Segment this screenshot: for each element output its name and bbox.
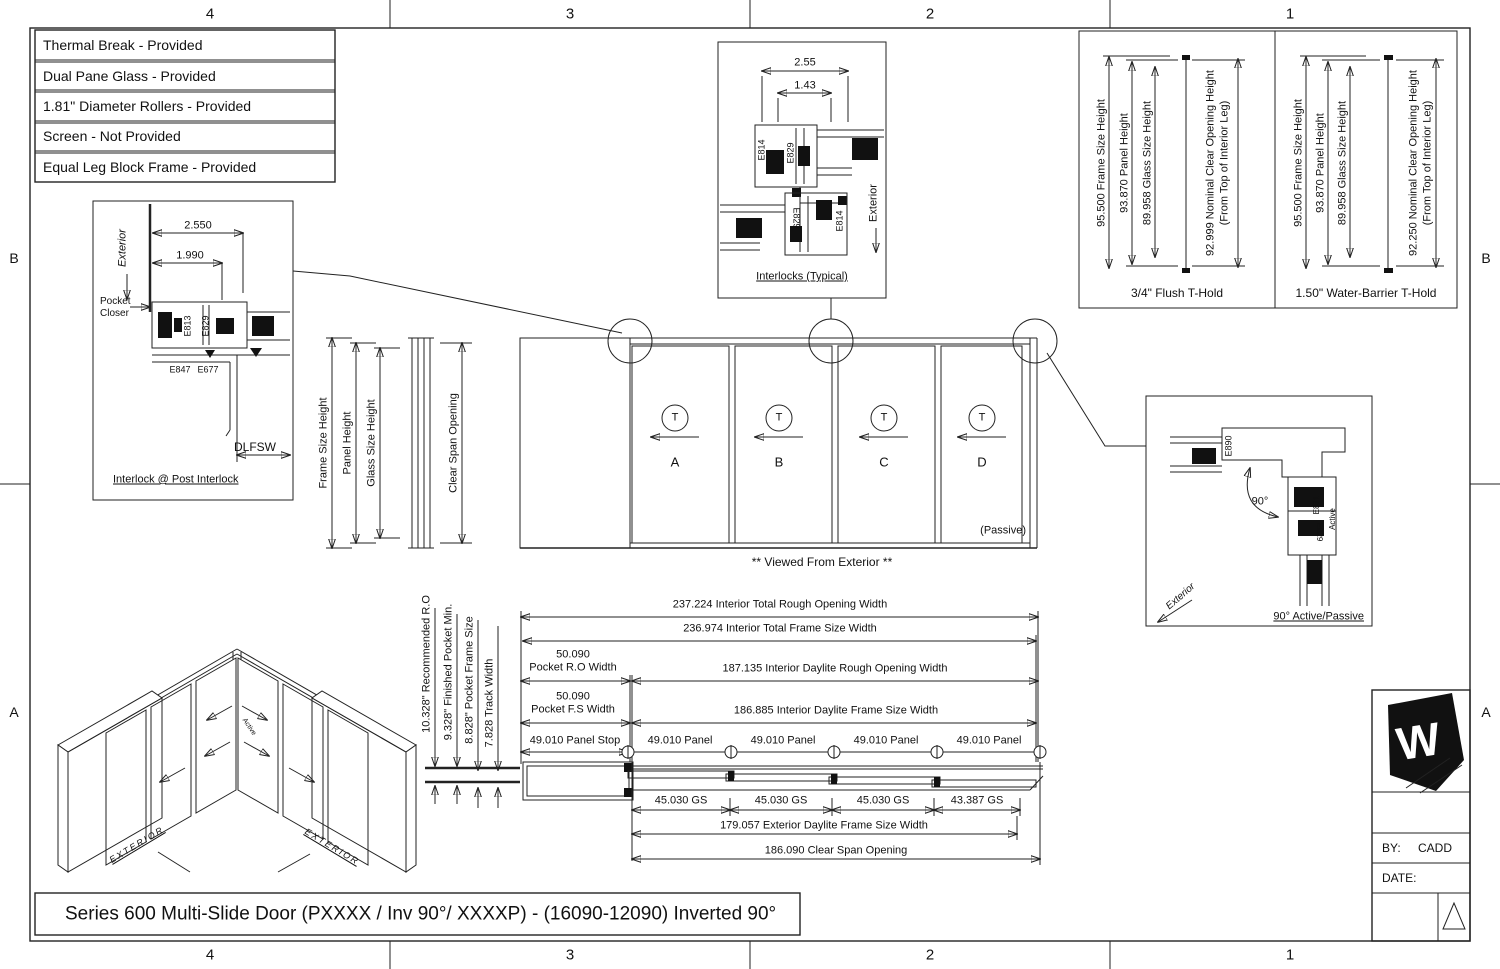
isometric-lines [58, 649, 416, 872]
post-interlock-detail-lines [93, 201, 622, 500]
elevation-lines [520, 319, 1146, 548]
title-block-lines: W [1372, 690, 1470, 941]
flush-thold-lines [1079, 31, 1275, 308]
drawing-sheet: W 4 3 2 1 4 3 2 1 B A B A Thermal Break … [0, 0, 1500, 969]
svg-text:W: W [1393, 712, 1445, 770]
logo-mark: W [1388, 693, 1464, 793]
